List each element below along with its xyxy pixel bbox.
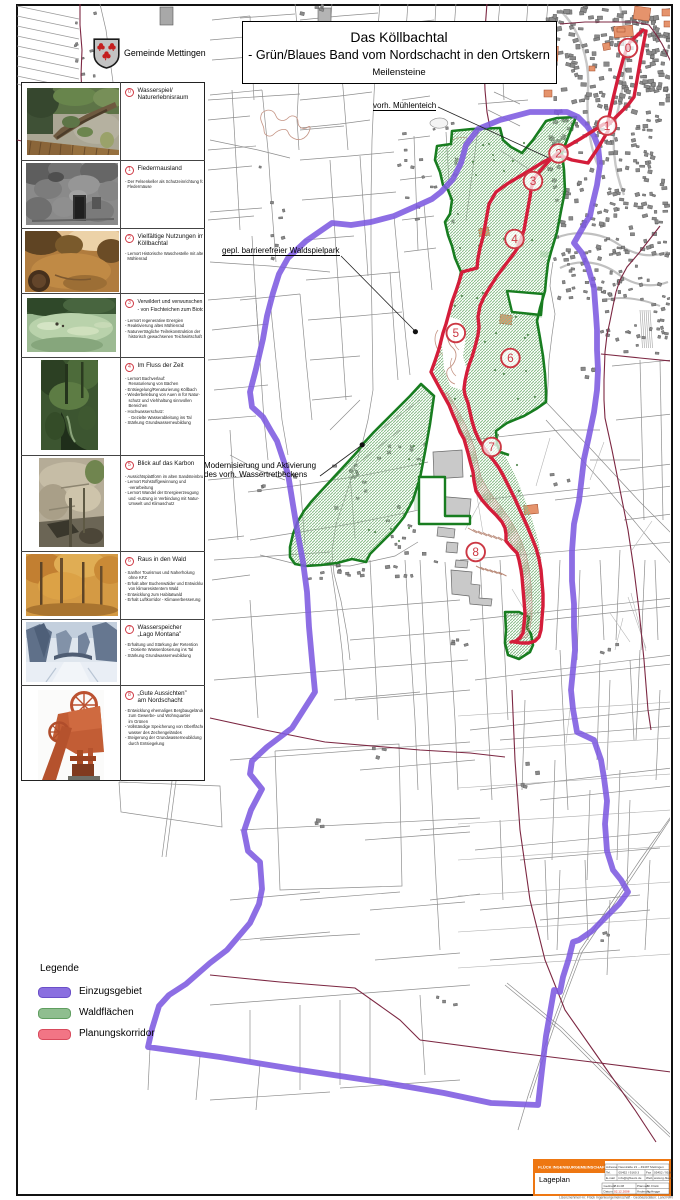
svg-text:N. Hegge: N. Hegge (647, 1190, 660, 1194)
svg-text:M. Flück: M. Flück (647, 1184, 659, 1188)
svg-text:6: 6 (507, 351, 514, 365)
svg-text:5: 5 (453, 326, 460, 340)
svg-text:FLÜCK INGENIEURGEMEINSCHAFT: FLÜCK INGENIEURGEMEINSCHAFT (538, 1165, 607, 1170)
svg-text:Neustraße 21 – 49497 Mettingen: Neustraße 21 – 49497 Mettingen (619, 1165, 665, 1169)
svg-text:E-mail: E-mail (606, 1176, 615, 1180)
svg-text:Fax: Fax (646, 1171, 652, 1175)
svg-text:05452 / 9160 30: 05452 / 9160 30 (654, 1171, 673, 1175)
svg-text:05452 / 9160 3: 05452 / 9160 3 (619, 1171, 640, 1175)
svg-text:8: 8 (472, 545, 479, 559)
svg-text:Lizenznehmer/-in: Flück Ingeni: Lizenznehmer/-in: Flück Ingenieurgemeins… (559, 1196, 673, 1200)
svg-text:1: 1 (604, 119, 611, 133)
svg-text:7: 7 (488, 440, 495, 454)
svg-text:0: 0 (625, 41, 632, 55)
svg-text:Lageplan: Lageplan (539, 1175, 570, 1184)
svg-text:3: 3 (530, 174, 537, 188)
svg-text:Adresse: Adresse (606, 1165, 618, 1169)
svg-text:7.11.08: 7.11.08 (614, 1184, 624, 1188)
svg-text:4: 4 (511, 232, 518, 246)
svg-text:02.12.2008: 02.12.2008 (614, 1190, 630, 1194)
svg-text:www.ig-flueck.de: www.ig-flueck.de (654, 1176, 673, 1180)
svg-text:2: 2 (555, 147, 562, 161)
svg-text:info@igflueck.de: info@igflueck.de (619, 1176, 642, 1180)
svg-text:Tel.: Tel. (606, 1171, 611, 1175)
svg-text:Datum: Datum (604, 1190, 614, 1194)
svg-text:Web: Web (646, 1176, 653, 1180)
